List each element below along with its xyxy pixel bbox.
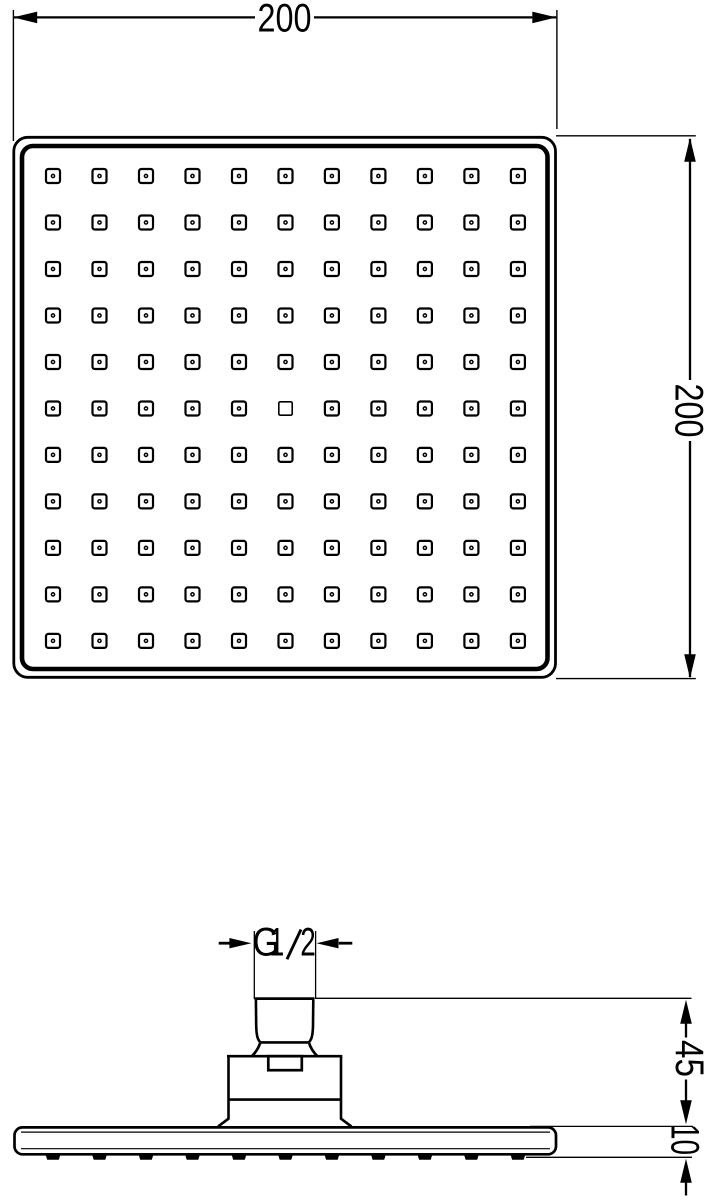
svg-text:10: 10 (663, 1124, 707, 1155)
svg-text:1: 1 (269, 921, 284, 965)
svg-text:200: 200 (258, 0, 312, 41)
svg-text:200: 200 (667, 384, 709, 438)
svg-text:45: 45 (667, 1040, 709, 1077)
svg-text:2: 2 (300, 921, 316, 965)
